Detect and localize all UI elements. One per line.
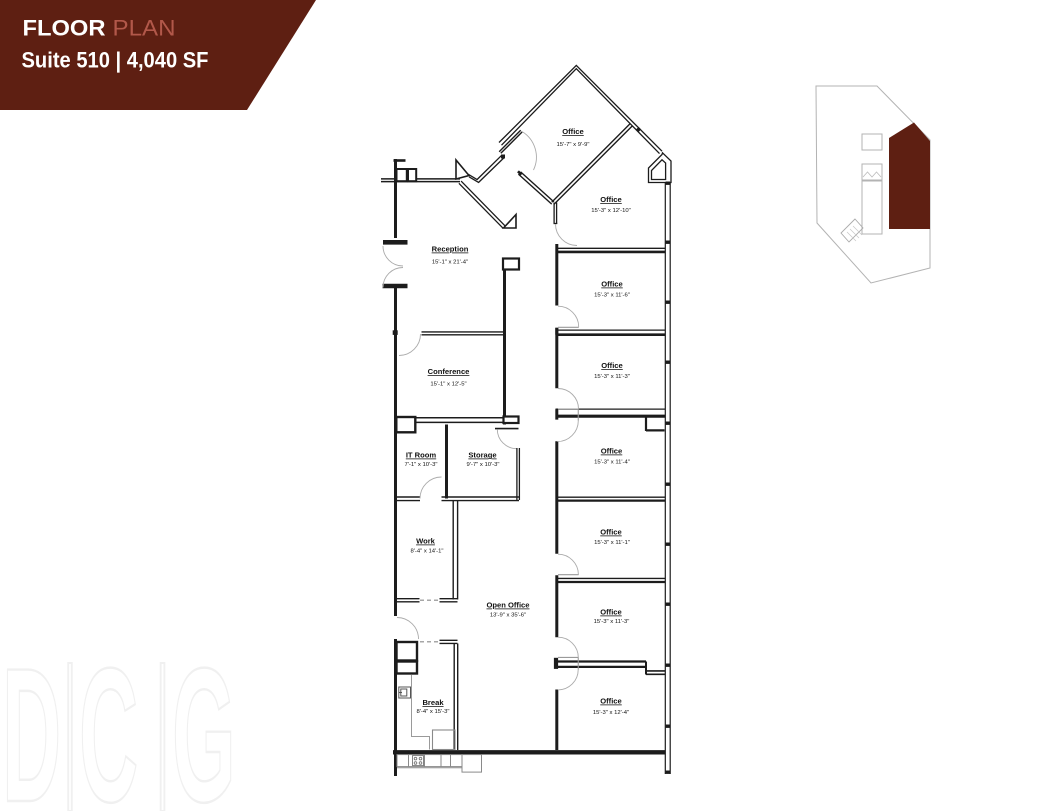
svg-text:15'-7" x 9'-9": 15'-7" x 9'-9" (557, 142, 590, 148)
svg-text:15'-1" x 12'-5": 15'-1" x 12'-5" (430, 382, 466, 388)
svg-text:7'-1" x 10'-3": 7'-1" x 10'-3" (405, 462, 438, 468)
svg-text:Work: Work (416, 537, 436, 546)
svg-text:8'-4" x 15'-3": 8'-4" x 15'-3" (417, 709, 450, 715)
svg-text:Office: Office (600, 697, 622, 706)
svg-text:15'-3" x 11'-3": 15'-3" x 11'-3" (594, 374, 630, 380)
svg-text:15'-3" x 11'-1": 15'-3" x 11'-1" (594, 540, 630, 546)
svg-text:G: G (172, 629, 236, 811)
svg-text:15'-3" x 11'-4": 15'-3" x 11'-4" (594, 460, 630, 466)
svg-text:15'-3" x 12'-4": 15'-3" x 12'-4" (593, 710, 629, 716)
svg-text:FLOOR: FLOOR (23, 16, 106, 41)
svg-text:Office: Office (600, 608, 622, 617)
svg-text:15'-1" x 21'-4": 15'-1" x 21'-4" (432, 260, 468, 266)
svg-text:Office: Office (601, 447, 623, 456)
svg-text:15'-3" x 11'-6": 15'-3" x 11'-6" (594, 293, 630, 299)
svg-text:15'-3" x 12'-10": 15'-3" x 12'-10" (591, 208, 631, 214)
svg-text:Break: Break (422, 698, 444, 707)
svg-text:Office: Office (600, 528, 622, 537)
svg-text:13'-9" x 35'-6": 13'-9" x 35'-6" (490, 613, 526, 619)
svg-text:IT Room: IT Room (406, 451, 437, 460)
svg-text:Conference: Conference (428, 367, 470, 376)
svg-text:Suite 510 | 4,040 SF: Suite 510 | 4,040 SF (22, 48, 209, 73)
svg-text:Open Office: Open Office (486, 601, 529, 610)
svg-text:8'-4" x 14'-1": 8'-4" x 14'-1" (411, 549, 444, 555)
svg-text:Reception: Reception (432, 245, 469, 254)
svg-text:Office: Office (601, 361, 623, 370)
svg-text:15'-3" x 11'-3": 15'-3" x 11'-3" (594, 619, 630, 625)
svg-text:Storage: Storage (468, 451, 496, 460)
svg-text:D: D (2, 629, 61, 811)
svg-text:Office: Office (562, 127, 584, 136)
svg-text:Office: Office (600, 195, 622, 204)
svg-text:9'-7" x 10'-3": 9'-7" x 10'-3" (467, 462, 500, 468)
svg-text:Office: Office (601, 280, 623, 289)
svg-text:PLAN: PLAN (113, 16, 176, 41)
svg-text:C: C (79, 629, 138, 811)
